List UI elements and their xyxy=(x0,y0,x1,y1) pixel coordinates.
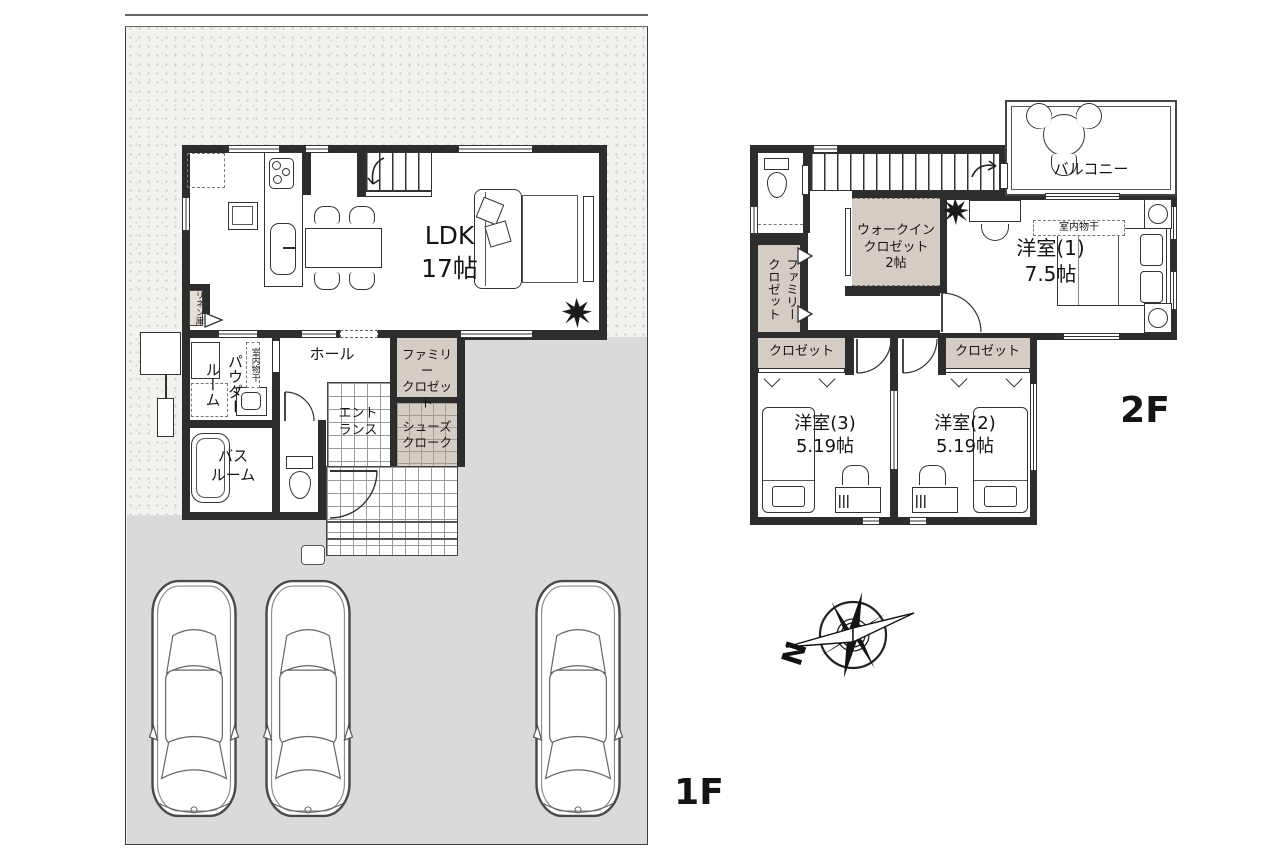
fold-door-arrow-icon xyxy=(797,247,814,265)
outdoor-unit-small xyxy=(157,398,174,437)
stove-icon xyxy=(269,158,294,189)
powder-room-label: パウダー ルーム xyxy=(198,344,246,424)
window-room2-right xyxy=(1030,383,1037,471)
room3-door-icon xyxy=(855,337,893,375)
site-fence-top xyxy=(125,14,648,27)
refrigerator-space xyxy=(187,153,225,188)
car-icon xyxy=(262,577,354,820)
desk-chair-icon xyxy=(919,465,946,485)
floor1-label: 1F xyxy=(664,770,734,812)
window-room1-south xyxy=(1063,333,1120,340)
sliding-door-hall-2 xyxy=(301,330,337,338)
dining-chair-icon xyxy=(314,206,340,224)
family-closet-1f-label: ファミリー クロゼット xyxy=(396,347,458,381)
car-icon xyxy=(532,577,624,820)
floor2-label: 2F xyxy=(1110,388,1180,430)
toilet-tank-icon xyxy=(286,456,313,469)
dining-chair-icon xyxy=(349,206,375,224)
window-2f-top xyxy=(813,145,838,153)
dining-table-icon xyxy=(305,228,382,268)
stairs-2f-gap xyxy=(1000,163,1008,189)
indoor-drying-2f-label: 室内物干 xyxy=(1033,221,1125,235)
kitchen-stub-wall xyxy=(303,152,311,195)
toilet-door-icon xyxy=(283,390,316,423)
closet-right-stub-wall xyxy=(938,338,946,375)
family-closet-2f-label: ファミリー クロゼット xyxy=(760,248,800,330)
wic-wall-bottom xyxy=(845,286,947,296)
plant-icon xyxy=(942,198,969,225)
wall-1f-right xyxy=(457,330,465,467)
bath-room-label: バス ルーム xyxy=(203,447,263,487)
walk-in-closet-label: ウォークイン クロゼット 2帖 xyxy=(850,223,942,277)
stairs-1f-arrow-icon xyxy=(366,156,388,188)
desk-chair-icon xyxy=(842,465,869,485)
linen-wall-right xyxy=(203,284,210,314)
plant-icon xyxy=(562,298,592,328)
window-left-kitchen xyxy=(182,197,190,231)
wall-toilet-right xyxy=(318,420,326,512)
compass-icon: N xyxy=(778,583,923,698)
fold-door-arrow-icon xyxy=(797,305,814,323)
window-room3-south xyxy=(862,517,880,525)
side-table-icon xyxy=(1144,199,1172,229)
shoes-cloak-label: シューズ クローク xyxy=(396,419,458,453)
desk-icon xyxy=(969,200,1021,222)
powder-door-gap xyxy=(273,341,279,372)
approach-stone xyxy=(301,545,325,565)
window-ldk-south xyxy=(460,330,533,338)
books-icon xyxy=(916,495,926,508)
closet-left-stub-wall xyxy=(845,338,854,375)
room3-label: 洋室(3) 5.19帖 xyxy=(781,412,869,460)
window-room-divider xyxy=(890,390,898,470)
linen-door-arrow-icon xyxy=(204,312,224,328)
kitchen-island xyxy=(228,202,258,230)
indoor-drying-1f-label: 室内物干 xyxy=(247,343,259,387)
rug-icon xyxy=(522,195,578,283)
room1-door-icon xyxy=(940,291,983,334)
toilet-2f-dash xyxy=(758,224,803,225)
kitchen-sink-icon xyxy=(270,223,296,275)
side-table-icon xyxy=(1144,303,1172,333)
desk-icon xyxy=(912,487,958,513)
tv-board-icon xyxy=(583,196,594,282)
entrance-door-icon xyxy=(328,468,380,520)
hall-label: ホール xyxy=(303,345,361,365)
kitchen-counter xyxy=(264,152,303,287)
room1-label: 洋室(1) 7.5帖 xyxy=(998,236,1103,288)
window-balcony-door xyxy=(1045,193,1120,200)
pillow-icon xyxy=(772,486,805,507)
books-icon xyxy=(839,495,849,508)
stairs-2f-arrow-icon xyxy=(970,157,1002,181)
room2-door-icon xyxy=(901,337,939,375)
sliding-door-hall-1 xyxy=(218,330,258,338)
porch-step-line1 xyxy=(327,521,457,523)
floorplan-root: リネン庫 室内物干 パウダー ルーム バス ルーム LDK 17帖 ホール エン… xyxy=(0,0,1280,850)
kitchen-island-inner xyxy=(232,206,253,225)
pillow-icon xyxy=(1140,271,1163,303)
window-top-3 xyxy=(458,145,533,153)
ldk-label: LDK 17帖 xyxy=(392,220,507,282)
window-2f-left xyxy=(750,206,758,234)
toilet-2f-tank-icon xyxy=(764,158,789,170)
pillow-icon xyxy=(984,486,1017,507)
dining-chair-icon xyxy=(349,272,375,290)
stairs-1f-rail xyxy=(365,191,432,197)
porch-step-line2 xyxy=(327,538,457,540)
car-icon xyxy=(148,577,240,820)
pillow-icon xyxy=(1140,234,1163,266)
outdoor-unit-pipe xyxy=(165,375,167,399)
linen-label: リネン庫 xyxy=(189,291,203,325)
corridor-2f-c xyxy=(845,296,940,330)
outdoor-unit-large xyxy=(140,332,181,375)
entrance-label: エント ランス xyxy=(330,406,386,442)
closet-right-label: クロゼット xyxy=(945,344,1030,362)
balcony-label: バルコニー xyxy=(1030,160,1152,180)
window-room2-south xyxy=(909,517,927,525)
closet-left-label: クロゼット xyxy=(758,344,845,362)
desk-icon xyxy=(835,487,881,513)
toilet-2f-door-gap xyxy=(802,165,809,195)
opening-hall-ldk xyxy=(340,330,378,338)
room2-label: 洋室(2) 5.19帖 xyxy=(921,412,1009,460)
dining-chair-icon xyxy=(314,272,340,290)
